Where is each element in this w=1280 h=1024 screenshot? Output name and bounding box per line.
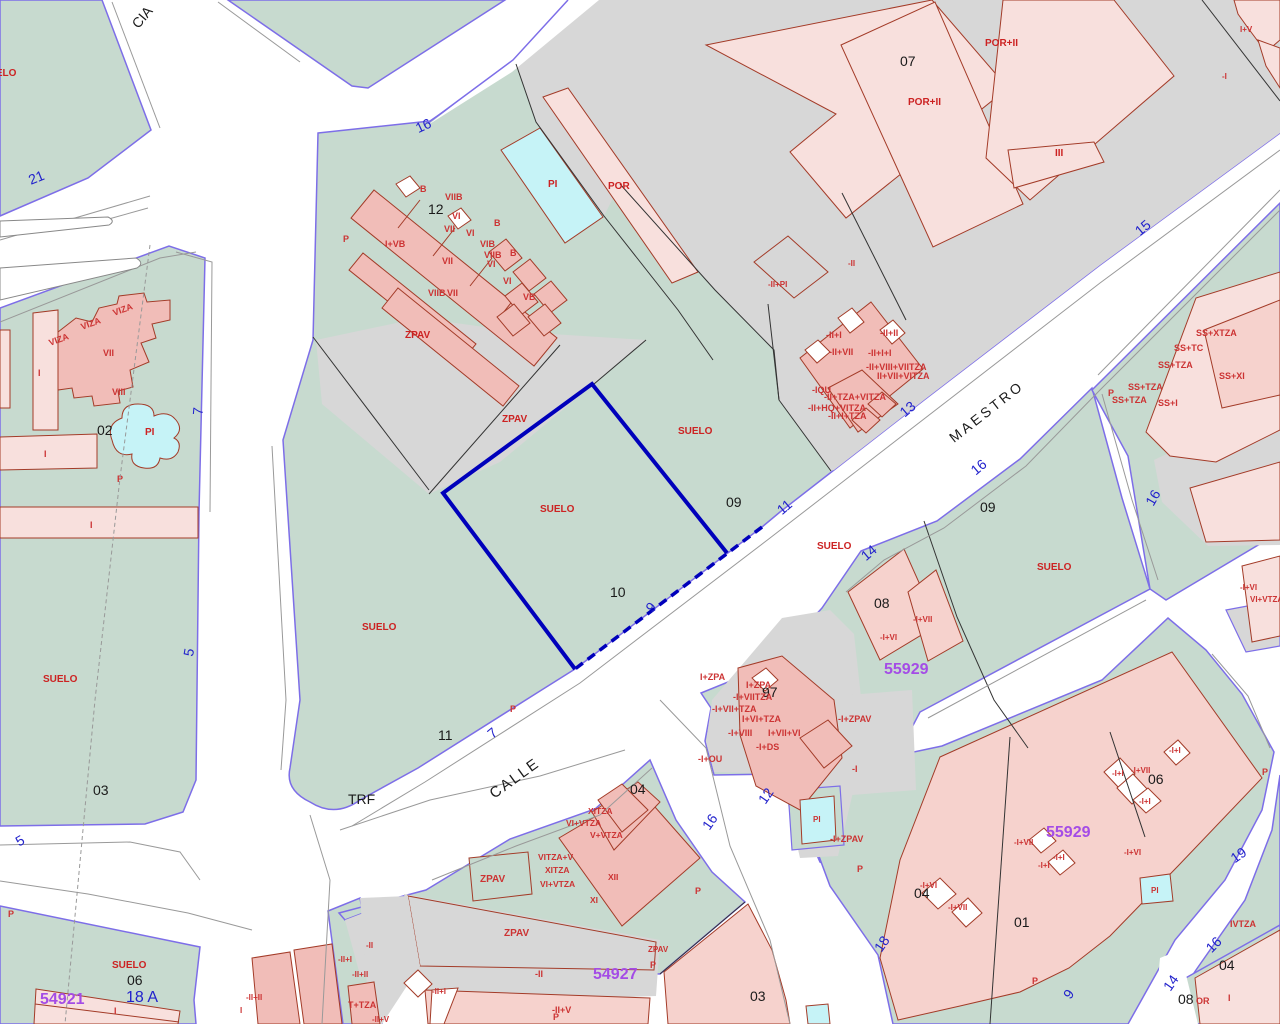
svg-text:-II+I+TZA: -II+I+TZA bbox=[828, 411, 867, 421]
svg-text:06: 06 bbox=[1148, 771, 1164, 787]
svg-text:ZPAV: ZPAV bbox=[504, 928, 530, 939]
svg-text:VI+VTZA: VI+VTZA bbox=[540, 879, 575, 889]
svg-text:VIIB: VIIB bbox=[428, 288, 446, 298]
svg-text:XI: XI bbox=[590, 895, 598, 905]
svg-text:-II+II: -II+II bbox=[246, 993, 262, 1002]
svg-text:-I+VI: -I+VI bbox=[920, 881, 937, 890]
svg-text:SS+TZA: SS+TZA bbox=[1158, 360, 1193, 370]
svg-text:P: P bbox=[1032, 976, 1038, 986]
svg-text:P: P bbox=[1262, 767, 1268, 777]
svg-text:P: P bbox=[510, 704, 516, 714]
svg-text:VB: VB bbox=[523, 292, 536, 302]
svg-text:-II+TZA+VITZA: -II+TZA+VITZA bbox=[824, 392, 887, 402]
svg-text:7: 7 bbox=[189, 406, 206, 415]
svg-text:09: 09 bbox=[726, 494, 742, 510]
svg-text:I: I bbox=[44, 449, 47, 459]
svg-text:III: III bbox=[1055, 148, 1064, 159]
svg-text:-I+VI: -I+VI bbox=[1124, 848, 1141, 857]
svg-text:-I+I: -I+I bbox=[1038, 861, 1050, 870]
svg-text:SUELO: SUELO bbox=[362, 622, 397, 633]
svg-text:-I+I: -I+I bbox=[1139, 797, 1151, 806]
svg-text:-II+V: -II+V bbox=[372, 1015, 390, 1024]
svg-text:VI+VTZA: VI+VTZA bbox=[566, 818, 601, 828]
svg-text:POR: POR bbox=[608, 181, 630, 192]
svg-text:VII: VII bbox=[447, 288, 458, 298]
svg-text:-II: -II bbox=[848, 259, 855, 268]
svg-text:PI: PI bbox=[1151, 886, 1159, 895]
svg-text:-I: -I bbox=[852, 764, 858, 774]
svg-text:-II+I: -II+I bbox=[826, 330, 842, 340]
svg-text:-II+I: -II+I bbox=[432, 987, 446, 996]
svg-text:SUELO: SUELO bbox=[817, 541, 852, 552]
svg-text:-I+VII: -I+VII bbox=[1014, 838, 1033, 847]
svg-text:PI: PI bbox=[145, 427, 155, 438]
svg-text:-II: -II bbox=[366, 941, 373, 950]
svg-text:55929: 55929 bbox=[1046, 824, 1091, 841]
svg-text:-I+VII: -I+VII bbox=[948, 903, 967, 912]
svg-text:08: 08 bbox=[874, 595, 890, 611]
svg-text:-I+VIII: -I+VIII bbox=[728, 728, 752, 738]
svg-text:-I+VII: -I+VII bbox=[1131, 766, 1150, 775]
svg-text:ZPAV: ZPAV bbox=[648, 945, 669, 954]
svg-text:I: I bbox=[38, 368, 41, 378]
svg-text:VIB: VIB bbox=[480, 239, 496, 249]
svg-text:SUELO: SUELO bbox=[112, 960, 147, 971]
svg-text:VII: VII bbox=[444, 224, 455, 234]
svg-text:P: P bbox=[8, 909, 14, 919]
svg-text:03: 03 bbox=[750, 988, 766, 1004]
svg-text:-II+I: -II+I bbox=[338, 955, 352, 964]
svg-text:SS+I: SS+I bbox=[1158, 398, 1178, 408]
svg-text:PI: PI bbox=[813, 815, 821, 824]
svg-text:11: 11 bbox=[438, 727, 453, 743]
svg-text:SS+TZA: SS+TZA bbox=[1128, 382, 1163, 392]
svg-text:B: B bbox=[494, 218, 501, 228]
svg-text:02: 02 bbox=[97, 422, 113, 438]
svg-text:V+VTZA: V+VTZA bbox=[590, 830, 623, 840]
svg-text:TRF: TRF bbox=[348, 791, 375, 807]
svg-text:VII: VII bbox=[103, 348, 114, 358]
svg-text:XITZA: XITZA bbox=[545, 865, 570, 875]
svg-text:06: 06 bbox=[127, 972, 143, 988]
svg-text:12: 12 bbox=[428, 201, 444, 217]
svg-text:IVTZA: IVTZA bbox=[1230, 919, 1256, 929]
svg-text:07: 07 bbox=[900, 53, 916, 69]
svg-text:I: I bbox=[1228, 993, 1231, 1003]
svg-text:I+VII+VI: I+VII+VI bbox=[768, 728, 801, 738]
svg-text:I: I bbox=[240, 1006, 242, 1015]
svg-text:04: 04 bbox=[1219, 957, 1235, 973]
svg-text:-I+DS: -I+DS bbox=[756, 742, 779, 752]
svg-text:SS+TC: SS+TC bbox=[1174, 343, 1204, 353]
svg-text:-I+OU: -I+OU bbox=[698, 754, 722, 764]
svg-text:VI: VI bbox=[452, 211, 461, 221]
svg-text:-II+V: -II+V bbox=[552, 1005, 571, 1015]
svg-text:II+VII+VITZA: II+VII+VITZA bbox=[877, 371, 930, 381]
svg-text:ZPAV: ZPAV bbox=[405, 330, 431, 341]
svg-text:VITZA+V: VITZA+V bbox=[538, 852, 574, 862]
svg-text:-I+VII+TZA: -I+VII+TZA bbox=[712, 704, 757, 714]
svg-text:-I+I: -I+I bbox=[1053, 853, 1065, 862]
svg-text:VII: VII bbox=[442, 256, 453, 266]
svg-text:XITZA: XITZA bbox=[588, 806, 613, 816]
svg-text:09: 09 bbox=[980, 499, 996, 515]
svg-text:SUELO: SUELO bbox=[678, 426, 713, 437]
svg-text:-II+PI: -II+PI bbox=[768, 280, 787, 289]
svg-text:-II+VII: -II+VII bbox=[829, 347, 853, 357]
svg-text:10: 10 bbox=[610, 584, 626, 600]
svg-text:18 A: 18 A bbox=[126, 989, 158, 1006]
svg-text:OR: OR bbox=[1196, 996, 1210, 1006]
svg-text:SUELO: SUELO bbox=[540, 504, 575, 515]
svg-text:VI: VI bbox=[466, 228, 475, 238]
svg-text:-I+VIITZA: -I+VIITZA bbox=[733, 692, 773, 702]
svg-text:T+TZA: T+TZA bbox=[348, 1000, 377, 1010]
svg-text:01: 01 bbox=[1014, 914, 1030, 930]
svg-text:-I: -I bbox=[1222, 72, 1227, 81]
svg-text:SS+XTZA: SS+XTZA bbox=[1196, 328, 1237, 338]
svg-text:SUELO: SUELO bbox=[0, 68, 17, 79]
svg-text:P: P bbox=[343, 234, 349, 244]
svg-text:-I+VI: -I+VI bbox=[1240, 583, 1257, 592]
svg-text:-II+I+I: -II+I+I bbox=[868, 348, 892, 358]
svg-text:-II+II: -II+II bbox=[352, 970, 368, 979]
svg-text:I+ZPA: I+ZPA bbox=[700, 672, 726, 682]
svg-text:-I+ZPAV: -I+ZPAV bbox=[838, 714, 871, 724]
svg-text:P: P bbox=[650, 960, 656, 970]
svg-text:I+V: I+V bbox=[1240, 25, 1253, 34]
svg-text:-I+ZPAV: -I+ZPAV bbox=[830, 834, 863, 844]
svg-text:SS+TZA: SS+TZA bbox=[1112, 395, 1147, 405]
svg-text:-I+VI: -I+VI bbox=[880, 633, 897, 642]
svg-text:P: P bbox=[695, 886, 701, 896]
svg-text:I+VI+TZA: I+VI+TZA bbox=[742, 714, 782, 724]
svg-text:P: P bbox=[857, 864, 863, 874]
svg-text:POR+II: POR+II bbox=[908, 97, 941, 108]
svg-text:B: B bbox=[420, 184, 427, 194]
svg-text:B: B bbox=[510, 248, 517, 258]
svg-text:-I+I: -I+I bbox=[1112, 769, 1124, 778]
svg-text:I: I bbox=[114, 1006, 117, 1016]
svg-text:I+ZPA: I+ZPA bbox=[746, 680, 772, 690]
svg-text:-I+I: -I+I bbox=[1169, 746, 1181, 755]
svg-text:I: I bbox=[90, 520, 93, 530]
svg-text:VIII: VIII bbox=[112, 387, 126, 397]
svg-text:ZPAV: ZPAV bbox=[480, 874, 506, 885]
svg-text:VI: VI bbox=[503, 276, 512, 286]
svg-text:POR+II: POR+II bbox=[985, 38, 1018, 49]
svg-text:55929: 55929 bbox=[884, 661, 929, 678]
svg-text:VI: VI bbox=[487, 259, 496, 269]
svg-text:-II+II: -II+II bbox=[880, 328, 898, 338]
svg-text:54921: 54921 bbox=[40, 991, 85, 1008]
svg-text:08: 08 bbox=[1178, 991, 1194, 1007]
svg-text:SUELO: SUELO bbox=[43, 674, 78, 685]
svg-text:-I+VII: -I+VII bbox=[913, 615, 932, 624]
svg-text:I+VB: I+VB bbox=[385, 239, 406, 249]
svg-text:VI+VTZA: VI+VTZA bbox=[1250, 595, 1280, 604]
svg-text:PI: PI bbox=[548, 179, 558, 190]
svg-text:04: 04 bbox=[630, 781, 646, 797]
svg-text:54927: 54927 bbox=[593, 966, 638, 983]
svg-text:-II: -II bbox=[535, 969, 543, 979]
svg-text:SS+XI: SS+XI bbox=[1219, 371, 1245, 381]
svg-text:VIIB: VIIB bbox=[445, 192, 463, 202]
svg-text:SUELO: SUELO bbox=[1037, 562, 1072, 573]
svg-text:ZPAV: ZPAV bbox=[502, 414, 528, 425]
svg-text:03: 03 bbox=[93, 782, 109, 798]
svg-text:XII: XII bbox=[608, 872, 618, 882]
